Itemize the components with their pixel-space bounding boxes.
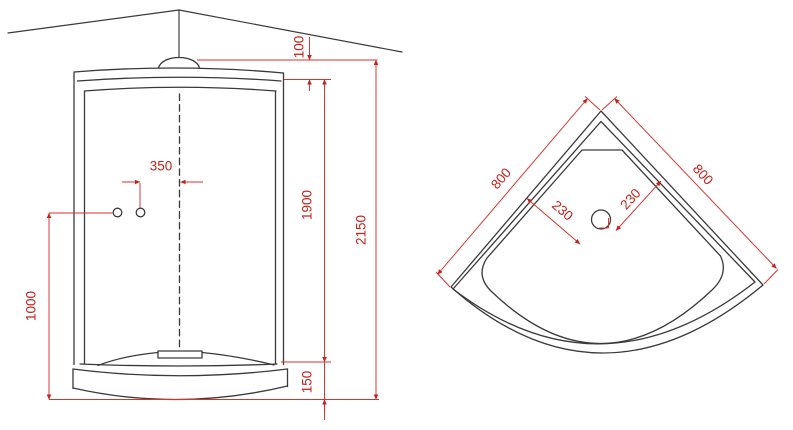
dim-label-drain-offset-left: 230 [549, 197, 576, 223]
extension-tick-corner-right [764, 270, 778, 285]
plan-view: 800 800 230 230 [436, 97, 778, 354]
front-dimension-labels: 350 100 1900 2150 1000 150 [24, 36, 369, 394]
tray-skirt-bottom [73, 386, 288, 400]
tray-rim-front-edge [73, 369, 288, 376]
door-handle-left [113, 208, 122, 217]
dim-label-right-side: 800 [690, 161, 716, 188]
tray-bowl-right-edge [202, 353, 274, 366]
tray-outer-edge [451, 111, 763, 353]
dim-800-right-line [615, 99, 777, 269]
dim-label-handle-to-center: 350 [150, 159, 173, 174]
cabin-structure [73, 58, 288, 400]
dim-label-door-height: 1900 [300, 190, 315, 220]
tray-rim-back-line [80, 364, 277, 366]
tray-inner-wall [482, 150, 723, 344]
front-dimension-lines [49, 37, 379, 420]
top-dome [159, 58, 200, 69]
ceiling-line-left [8, 10, 179, 33]
tray-step [158, 351, 202, 358]
dim-label-dome-offset: 100 [292, 36, 307, 59]
dim-800-left-line [438, 99, 588, 275]
tray-bowl-left-edge [98, 353, 158, 366]
top-frame-mid-edge [78, 77, 282, 81]
drain-circle [592, 210, 611, 229]
room-corner [8, 10, 402, 58]
door-handle-right [136, 208, 145, 217]
top-frame-inner-edge [85, 87, 277, 91]
top-frame-outer-edge [74, 68, 284, 73]
dim-label-total-height: 2150 [354, 215, 369, 245]
tray-plan-structure [451, 111, 763, 353]
dim-label-handle-height: 1000 [24, 291, 39, 321]
drawing-canvas: 350 100 1900 2150 1000 150 [0, 0, 793, 430]
dim-label-tray-height: 150 [300, 371, 315, 394]
technical-drawing: 350 100 1900 2150 1000 150 [0, 0, 793, 430]
dim-label-left-side: 800 [488, 165, 514, 192]
tray-rim-edge [453, 122, 755, 344]
ceiling-line-right [179, 10, 402, 52]
front-view: 350 100 1900 2150 1000 150 [8, 10, 402, 420]
dim-label-drain-offset-right: 230 [617, 186, 643, 213]
